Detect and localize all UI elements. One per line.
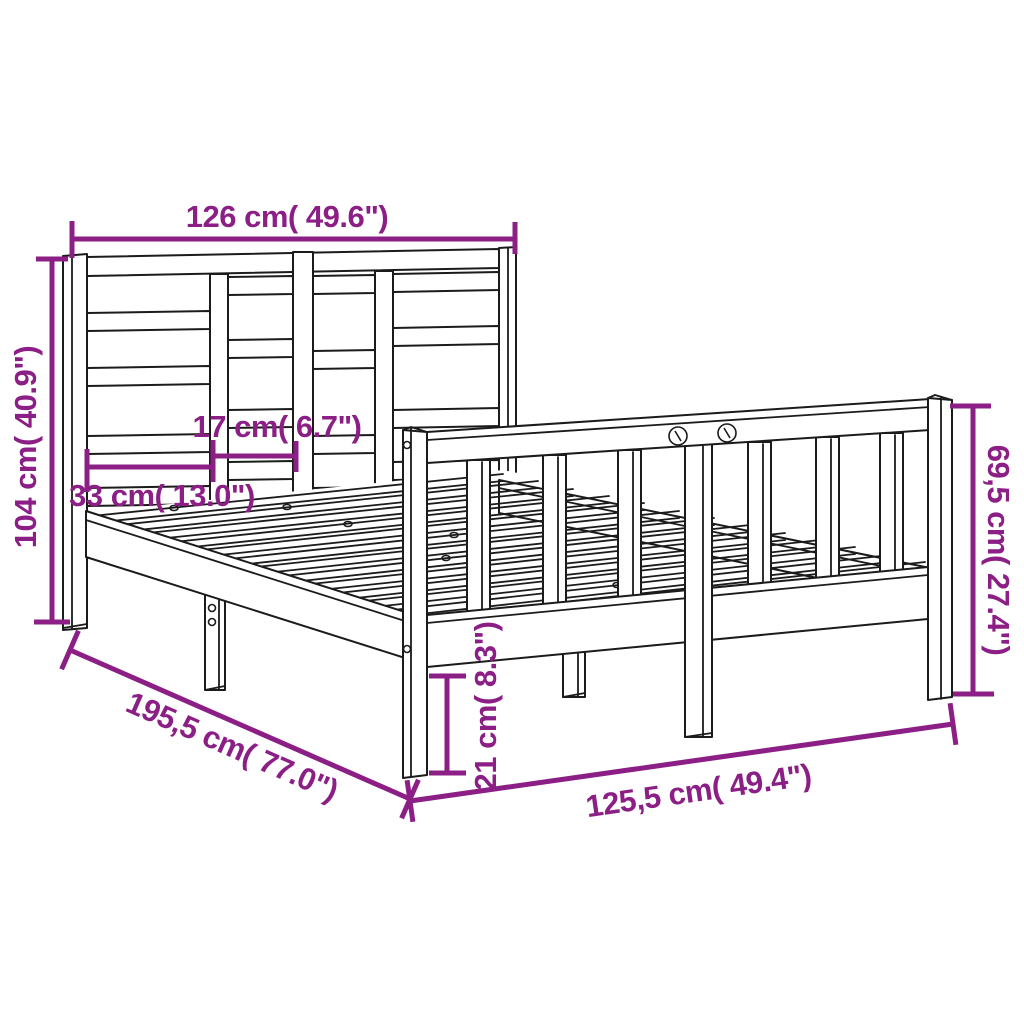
dimension-bed-length: 195,5 cm( 77.0") xyxy=(62,631,419,819)
dimension-footboard-height: 69,5 cm( 27.4") xyxy=(950,406,1016,694)
footboard-right-post xyxy=(928,395,952,700)
footboard-center-leg xyxy=(685,444,712,737)
bed-frame-drawing: 126 cm( 49.6") 104 cm( 40.9") 17 cm( 6.7… xyxy=(0,0,1024,1024)
dimension-label-bed-width: 125,5 cm( 49.4") xyxy=(584,757,814,824)
bed-frame-dimension-diagram: 126 cm( 49.6") 104 cm( 40.9") 17 cm( 6.7… xyxy=(0,0,1024,1024)
dimension-label-slat-spacing: 17 cm( 6.7") xyxy=(193,409,362,444)
dimension-label-headboard-width: 126 cm( 49.6") xyxy=(186,199,388,234)
dimension-label-bed-length: 195,5 cm( 77.0") xyxy=(121,685,343,808)
headboard-left-post xyxy=(63,254,87,630)
dimension-label-slat-length: 33 cm( 13.0") xyxy=(69,478,255,513)
dimension-label-ground-clearance: 21 cm( 8.3") xyxy=(468,622,503,791)
dimension-label-footboard-height: 69,5 cm( 27.4") xyxy=(981,445,1016,656)
footboard-left-post xyxy=(403,427,427,778)
dimension-headboard-height: 104 cm( 40.9") xyxy=(8,259,70,622)
dimension-label-headboard-height: 104 cm( 40.9") xyxy=(8,346,43,548)
